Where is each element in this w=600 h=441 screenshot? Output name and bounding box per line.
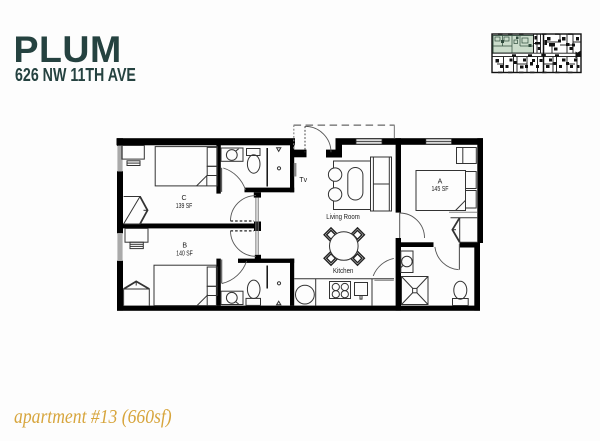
svg-text:C: C: [181, 195, 186, 202]
svg-text:Living Room: Living Room: [326, 214, 360, 221]
svg-text:Tv: Tv: [299, 177, 307, 184]
svg-text:140 SF: 140 SF: [176, 251, 193, 258]
svg-text:A: A: [438, 178, 443, 185]
svg-text:B: B: [182, 243, 187, 250]
svg-text:145 SF: 145 SF: [432, 186, 449, 193]
svg-text:Kitchen: Kitchen: [333, 268, 354, 275]
svg-text:139 SF: 139 SF: [176, 203, 193, 210]
